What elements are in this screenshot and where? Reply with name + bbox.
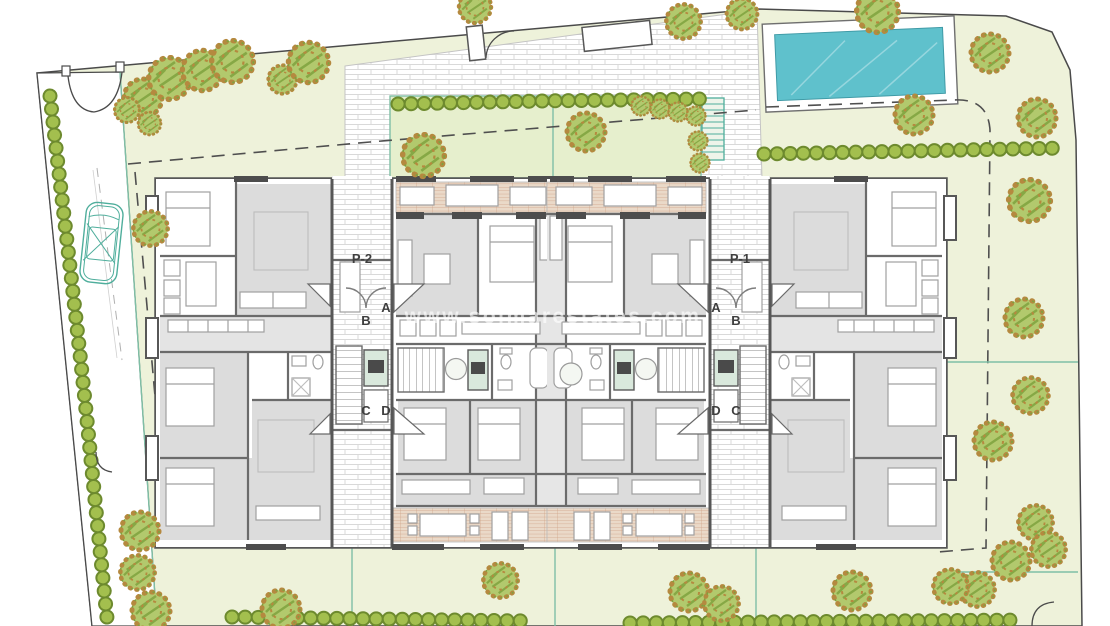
tree-icon [833, 572, 871, 610]
tree-icon [483, 563, 517, 597]
entrance-letter-a-right: A [711, 300, 721, 315]
label-block-p1: P-1 [730, 251, 750, 266]
entrance-letter-c-right: C [731, 403, 741, 418]
tree-icon [403, 135, 445, 177]
tree-icon [971, 34, 1009, 72]
tree-icon [666, 4, 700, 38]
entrance-letter-c-left: C [361, 403, 371, 418]
tree-icon [689, 132, 708, 151]
tree-icon [567, 113, 605, 151]
tree-icon [1005, 299, 1043, 337]
tree-icon [992, 542, 1030, 580]
tree-icon [132, 592, 170, 626]
entrance-letter-b-left: B [361, 313, 370, 328]
entrance-letter-a-left: A [381, 300, 391, 315]
tree-icon [115, 98, 140, 123]
tree-icon [727, 0, 758, 29]
tree-icon [687, 107, 706, 126]
tree-icon [1009, 180, 1051, 222]
tree-icon [670, 573, 708, 611]
entrance-letter-d-left: D [381, 403, 390, 418]
entrance-pillar [466, 25, 485, 60]
main-building [146, 176, 956, 550]
tree-icon [691, 154, 710, 173]
tree-icon [459, 0, 491, 23]
tree-icon [669, 103, 688, 122]
label-block-p2: P-2 [352, 251, 372, 266]
tree-icon [933, 569, 967, 603]
tree-icon [262, 590, 300, 626]
tree-icon [1013, 378, 1049, 414]
tree-icon [704, 586, 738, 620]
tree-icon [895, 96, 933, 134]
tree-icon [651, 100, 670, 119]
entrance-letter-b-right: B [731, 313, 740, 328]
tree-icon [133, 211, 167, 245]
swimming-pool [762, 16, 958, 112]
round-table [560, 363, 582, 385]
tree-icon [632, 97, 651, 116]
site-plan-image: P-2 P-1 A B C D A B C D www.solmarestate… [0, 0, 1110, 626]
tree-icon [1018, 99, 1056, 137]
tree-icon [138, 112, 161, 135]
tree-icon [974, 422, 1012, 460]
entrance-letter-d-right: D [711, 403, 720, 418]
watermark-text: www.solmarestates.com [404, 305, 702, 328]
pool-water [775, 27, 946, 100]
pergola-icon [702, 98, 724, 160]
tree-icon [1031, 532, 1065, 566]
tree-icon [857, 0, 899, 32]
tree-icon [288, 42, 328, 82]
tree-icon [120, 555, 154, 589]
tree-icon [121, 512, 159, 550]
tree-icon [212, 41, 254, 83]
site-plan-svg: P-2 P-1 A B C D A B C D www.solmarestate… [0, 0, 1110, 626]
